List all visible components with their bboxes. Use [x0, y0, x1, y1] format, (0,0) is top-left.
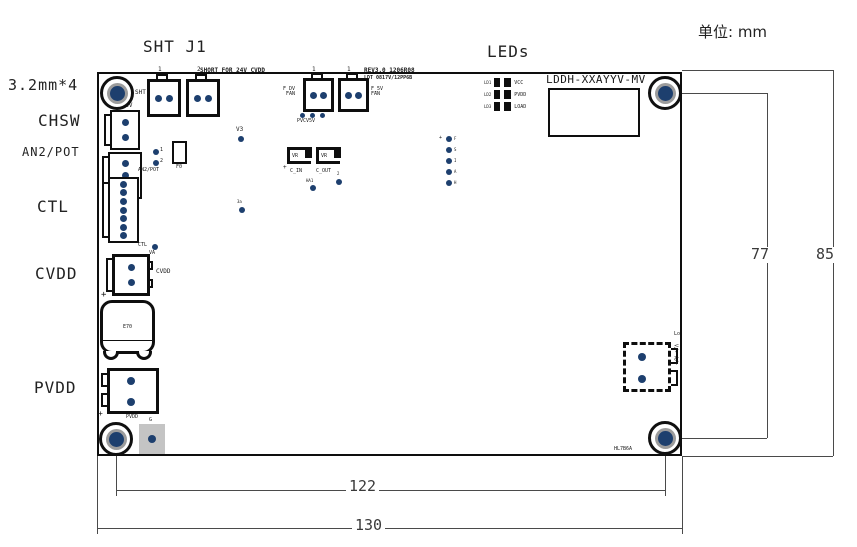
testpoint [446, 136, 452, 142]
label-box [548, 88, 640, 137]
led-ref: LD2 [484, 92, 491, 97]
chsw-connector [110, 110, 140, 150]
led-row-3: LD3 LOAD [484, 102, 526, 111]
callout-sht-j1: SHT J1 [143, 39, 207, 56]
pin [122, 119, 129, 126]
hole-pad [658, 431, 673, 446]
silk-tp-a1: 1 [160, 148, 163, 153]
silk-fan2-label: F_5V FAN [371, 87, 383, 98]
silk-fan2-pin: 1 [347, 67, 351, 73]
testpoint [153, 160, 159, 166]
pin [638, 353, 646, 361]
dim-85-ext-top [682, 70, 833, 71]
pin [194, 95, 201, 102]
mounting-hole-bottom-right [648, 421, 682, 455]
silk-an2-pot: AN2/POT [138, 168, 159, 173]
cvdd-connector [112, 254, 150, 296]
silk-c-out: C_OUT [316, 169, 331, 174]
mounting-hole-top-left [100, 76, 134, 110]
hole-pad [658, 86, 673, 101]
callout-hole-spec: 3.2mm*4 [8, 78, 78, 94]
callout-leds: LEDs [487, 44, 530, 61]
testpoint [239, 207, 245, 213]
pin [128, 279, 135, 286]
testpoint [446, 147, 452, 153]
dim-77-line [767, 93, 768, 438]
led-icon [494, 78, 511, 87]
tp-label: A [454, 170, 456, 174]
silk-tp2: 2 [337, 172, 339, 176]
tp-label: I [454, 159, 456, 163]
fan1-connector [303, 78, 334, 112]
silk-vr1: VR [292, 153, 298, 159]
pin [345, 92, 352, 99]
dim-85-value: 85 [813, 247, 837, 263]
callout-ctl: CTL [37, 199, 69, 216]
testpoint [336, 179, 342, 185]
led-name: LOAD [514, 104, 526, 110]
silk-short-note: SHORT FOR 24V CVDD [200, 68, 265, 74]
pin [638, 375, 646, 383]
led-ref: LD1 [484, 80, 491, 85]
pin [120, 181, 127, 188]
testpoint [310, 185, 316, 191]
led-icon [494, 102, 511, 111]
silk-e70: E70 [123, 324, 132, 330]
silk-f0: F0 [176, 165, 182, 170]
silk-j1-pin1: 1 [158, 67, 162, 73]
testpoint [446, 180, 452, 186]
callout-cvdd: CVDD [35, 266, 78, 283]
pin [127, 398, 135, 406]
dim-130-line [97, 528, 682, 529]
hole-pad [109, 432, 124, 447]
callout-pvdd: PVDD [34, 380, 77, 397]
mounting-hole-top-right [648, 76, 682, 110]
component-f0 [172, 141, 187, 164]
dim-122-value: 122 [346, 479, 379, 495]
tp-label: H [454, 181, 456, 185]
silk-tp3a: 3a [237, 200, 242, 204]
pin [128, 264, 135, 271]
silk-part-number: LDDH-XXAYYV-MV [546, 74, 646, 86]
led-name: VCC [514, 80, 523, 86]
silk-cin-plus: + [283, 165, 287, 171]
pin [120, 215, 127, 222]
silk-tp-a2: 2 [160, 159, 163, 164]
silk-ctl: CTL [138, 243, 147, 248]
silk-pvdd: PVDD [126, 415, 138, 420]
led-ref: LD3 [484, 104, 491, 109]
pin [120, 198, 127, 205]
silk-sht: SHT [135, 90, 146, 96]
silk-lo: Lo [674, 332, 680, 337]
silk-fan1-label: F_DV FAN [283, 87, 295, 98]
jumper-sht-1 [147, 79, 181, 117]
dim-130-value: 130 [352, 518, 385, 534]
silk-hole-note: HL7B6A [614, 447, 632, 452]
silk-out-pins: V/- A/+ [672, 344, 677, 390]
vr-block [305, 147, 312, 158]
pin [310, 92, 317, 99]
pin [122, 160, 129, 167]
testpoint [320, 113, 325, 118]
jumper-sht-2 [186, 79, 220, 117]
pin [205, 95, 212, 102]
silk-fan1-pin: 1 [312, 67, 316, 73]
pin [148, 435, 156, 443]
silk-pvcv5v: PVCV5V [297, 119, 315, 124]
mounting-hole-bottom-left [99, 422, 133, 456]
silk-vr2: VR [321, 153, 327, 159]
pin [155, 95, 162, 102]
pin [127, 377, 135, 385]
silk-cap-plus: + [101, 291, 106, 300]
dim-85-line [833, 70, 834, 456]
pvdd-connector [107, 368, 159, 414]
tp-label: S [454, 148, 456, 152]
callout-an2-pot: AN2/POT [22, 146, 80, 159]
dim-77-value: 77 [748, 247, 772, 263]
dim-130-ext-left [97, 456, 98, 534]
silk-rev-line2: LDT 0817V/12PP6B [364, 76, 412, 81]
testpoint [153, 149, 159, 155]
silk-ha1: HA1 [306, 179, 313, 183]
fan2-connector [338, 78, 369, 112]
pin [355, 92, 362, 99]
pin [166, 95, 173, 102]
pcb-dimension-drawing: 单位: mm SHT J1 LEDs 3.2mm*4 CHSW AN2/POT … [0, 0, 857, 547]
testpoint [446, 158, 452, 164]
capacitor-e70: E70 [100, 300, 155, 354]
led-name: PVDD [514, 92, 526, 98]
silk-cvdd: CVDD [156, 269, 170, 275]
pin [320, 92, 327, 99]
pin [120, 189, 127, 196]
dim-122-line [116, 490, 665, 491]
ctl-connector [108, 177, 139, 243]
led-icon [494, 90, 511, 99]
led-row-1: LD1 VCC [484, 78, 523, 87]
vr-block [334, 147, 341, 158]
hole-pad [110, 86, 125, 101]
pin [120, 207, 127, 214]
silk-tp-plus: + [439, 136, 442, 141]
led-row-2: LD2 PVDD [484, 90, 526, 99]
capacitor-chord [103, 340, 152, 341]
tp-label: F [454, 137, 456, 141]
unit-note: 单位: mm [698, 25, 767, 41]
pin [120, 224, 127, 231]
silk-v3: V3 [236, 127, 243, 133]
pin [122, 134, 129, 141]
silk-pvdd-plus: + [98, 410, 103, 418]
silk-rev-line1: REV3.0 1206R08 [364, 68, 415, 74]
testpoint [446, 169, 452, 175]
callout-chsw: CHSW [38, 113, 81, 130]
testpoint-v3 [238, 136, 244, 142]
silk-c-in: C_IN [290, 169, 302, 174]
dim-130-ext-right [682, 456, 683, 534]
dim-85-ext-bottom [682, 456, 833, 457]
silk-g: G [149, 418, 152, 423]
pin [120, 232, 127, 239]
output-connector [623, 342, 671, 392]
